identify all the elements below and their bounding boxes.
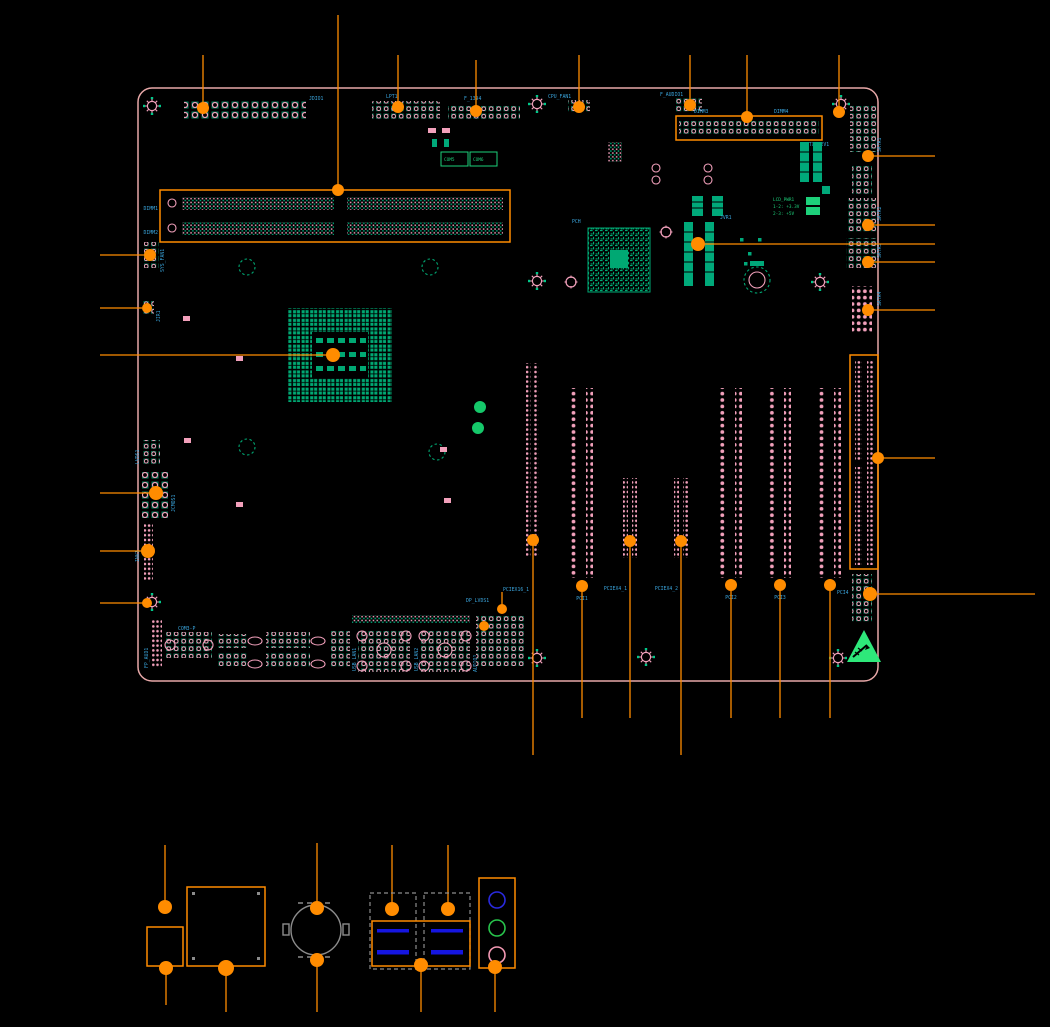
usb-port-tongue: [431, 929, 463, 933]
slot-pci1: [570, 388, 577, 578]
dimm4-label: DIMM4: [774, 109, 789, 115]
lpt-header-label: LPT1: [386, 94, 398, 100]
board-diagram: JDIO1 LPT1 F_1394 CPU_FAN1 F_AUDIO1 COM5…: [100, 15, 1035, 755]
mounting-hole-icon: [143, 95, 850, 667]
slot-pci4: [818, 388, 825, 578]
dimm3-label: DIMM3: [694, 109, 709, 115]
pciex4-2-label: PCIEX4_2: [655, 586, 678, 592]
rear-io-callout-markers: [158, 900, 502, 976]
audio-jack-column: [479, 878, 515, 968]
sys-fan-label: SYS_FAN1: [160, 249, 166, 272]
usb-port-tongue: [377, 950, 409, 955]
small-component: [608, 142, 622, 162]
lvds-label: LVDS1: [135, 449, 141, 464]
cpu-fan-label: CPU_FAN1: [548, 94, 571, 100]
small-pad: [704, 164, 712, 172]
chipset-label: PCH: [572, 219, 581, 225]
jumper-setting-table: LCD_PWR1 1-2: +3.3V 2-3: +5V: [773, 197, 820, 217]
dimm2-label: DIMM2: [144, 230, 159, 236]
front-audio-label: F_AUDIO1: [660, 92, 683, 98]
motherboard-layout-diagram: JDIO1 LPT1 F_1394 CPU_FAN1 F_AUDIO1 COM5…: [0, 0, 1050, 1027]
com5-label: COM5: [444, 157, 455, 163]
capacitor: [474, 401, 486, 413]
sata3-label: SATA3: [877, 243, 883, 258]
fp-audio-label: FP_AUD1: [144, 648, 150, 668]
dimm1-label: DIMM1: [144, 206, 159, 212]
lpt-header: [372, 101, 440, 119]
usb-port-tongue: [431, 950, 463, 955]
usb-lan1-label: USB_LAN1: [352, 648, 358, 671]
slot-pci2: [719, 388, 726, 578]
sata1-label: SATA1: [877, 137, 883, 152]
jcmos-label: JCMOS1: [171, 495, 177, 512]
chipset: PCH: [572, 219, 650, 292]
small-pad: [652, 176, 660, 184]
jumper-table-row2: 2-3: +5V: [773, 211, 795, 217]
firewire-header: [448, 104, 520, 120]
dp-lvds-label: DP_LVDS1: [466, 598, 489, 604]
com3-label: COM3-P: [178, 626, 195, 632]
jumper-table-row1: 1-2: +3.3V: [773, 204, 800, 210]
sata2-label: SATA2: [877, 206, 883, 221]
jumper-table-title: LCD_PWR1: [773, 197, 795, 203]
small-pad: [704, 176, 712, 184]
vrm-components: [800, 142, 830, 194]
pciex4-1-label: PCIEX4_1: [604, 586, 627, 592]
line-out-jack: [489, 920, 505, 936]
capacitor: [472, 422, 484, 434]
rear-io-callout-lines: [165, 843, 495, 1012]
esd-warning-icon: [847, 630, 881, 662]
expansion-slots: PCIEX16_1 PCI1 PCIEX4_1 PCIEX4_2 PCI2 PC…: [503, 363, 849, 602]
usb-lan2-label: USB_LAN2: [414, 648, 420, 671]
pci4-label: PCI4: [837, 590, 849, 596]
usb-port-tongue: [377, 929, 409, 933]
sata4-label: SATA4: [877, 291, 883, 306]
bottom-edge-headers: FP_AUD1 COM3-P USB_LAN1: [144, 598, 526, 672]
dimm12-sockets: DIMM1 DIMM2: [144, 190, 510, 242]
line-in-jack: [489, 892, 505, 908]
jvr-label: JVR1: [720, 215, 732, 221]
small-port-box: [147, 927, 183, 966]
slot-pciex16: [526, 363, 531, 557]
small-pad: [652, 164, 660, 172]
left-edge-headers: SYS_FAN1 JIR1 LVDS1 JCMOS1 INV1: [135, 242, 177, 580]
diagram-canvas: JDIO1 LPT1 F_1394 CPU_FAN1 F_AUDIO1 COM5…: [0, 0, 1050, 1027]
dio-header-label: JDIO1: [309, 96, 324, 102]
rear-io-panel: [147, 843, 515, 1012]
inv-label: INV1: [135, 550, 141, 562]
com6-label: COM6: [473, 157, 484, 163]
usb-lan-footprint-2: [419, 630, 471, 672]
rtc-battery: [744, 261, 770, 293]
jir-label: JIR1: [156, 310, 162, 322]
com-jumper-block: COM5 COM6: [428, 128, 497, 166]
pciex16-label: PCIEX16_1: [503, 587, 529, 593]
slot-pci3: [768, 388, 775, 578]
firewire-header-label: F_1394: [464, 96, 481, 102]
usb-lan-footprint-1: [357, 630, 411, 672]
lan-port-box: [187, 887, 265, 966]
